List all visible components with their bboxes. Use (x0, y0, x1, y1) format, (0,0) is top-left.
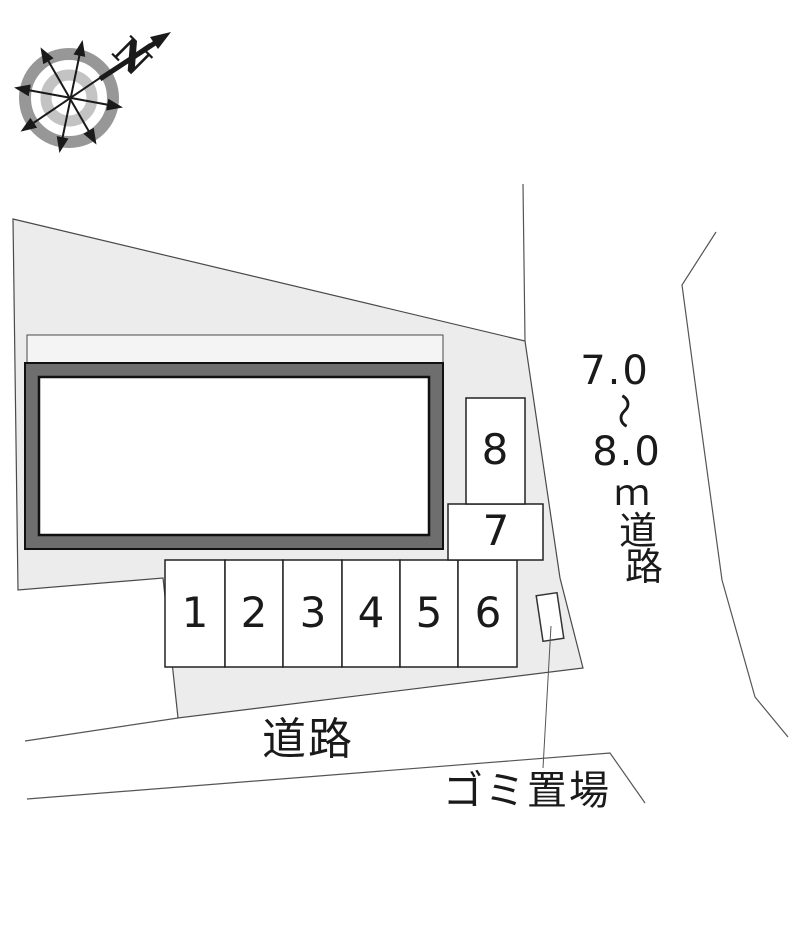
right-road-left-edge (523, 184, 525, 341)
parking-space-label-2: 2 (241, 592, 268, 634)
right-road-width-char-6: 路 (625, 548, 665, 586)
site-plan: N 1 2 3 4 5 6 7 8 7.0 〜 8.0 ｍ 道 路 道路 ゴミ置… (0, 0, 800, 940)
parking-space-label-3: 3 (300, 592, 327, 634)
parking-space-label-4: 4 (358, 592, 385, 634)
parking-space-label-8: 8 (482, 429, 509, 471)
parking-space-label-1: 1 (182, 592, 209, 634)
right-road-width-char-3: 8.0 (592, 432, 662, 472)
right-road-width-char-1: 7.0 (580, 351, 650, 391)
walkway-strip (27, 335, 443, 363)
right-road-width-char-4: ｍ (614, 476, 652, 512)
parking-space-label-7: 7 (483, 510, 510, 552)
garbage-area-label: ゴミ置場 (443, 771, 611, 811)
building-inner (39, 377, 429, 535)
right-road-right-edge (682, 232, 788, 737)
bottom-road-label: 道路 (262, 718, 354, 762)
right-road-width-char-2: 〜 (604, 393, 640, 431)
parking-space-label-6: 6 (475, 592, 502, 634)
compass: N (17, 28, 171, 150)
bottom-road-upper-edge (25, 718, 178, 741)
parking-space-label-5: 5 (416, 592, 443, 634)
plan-svg: N (0, 0, 800, 940)
